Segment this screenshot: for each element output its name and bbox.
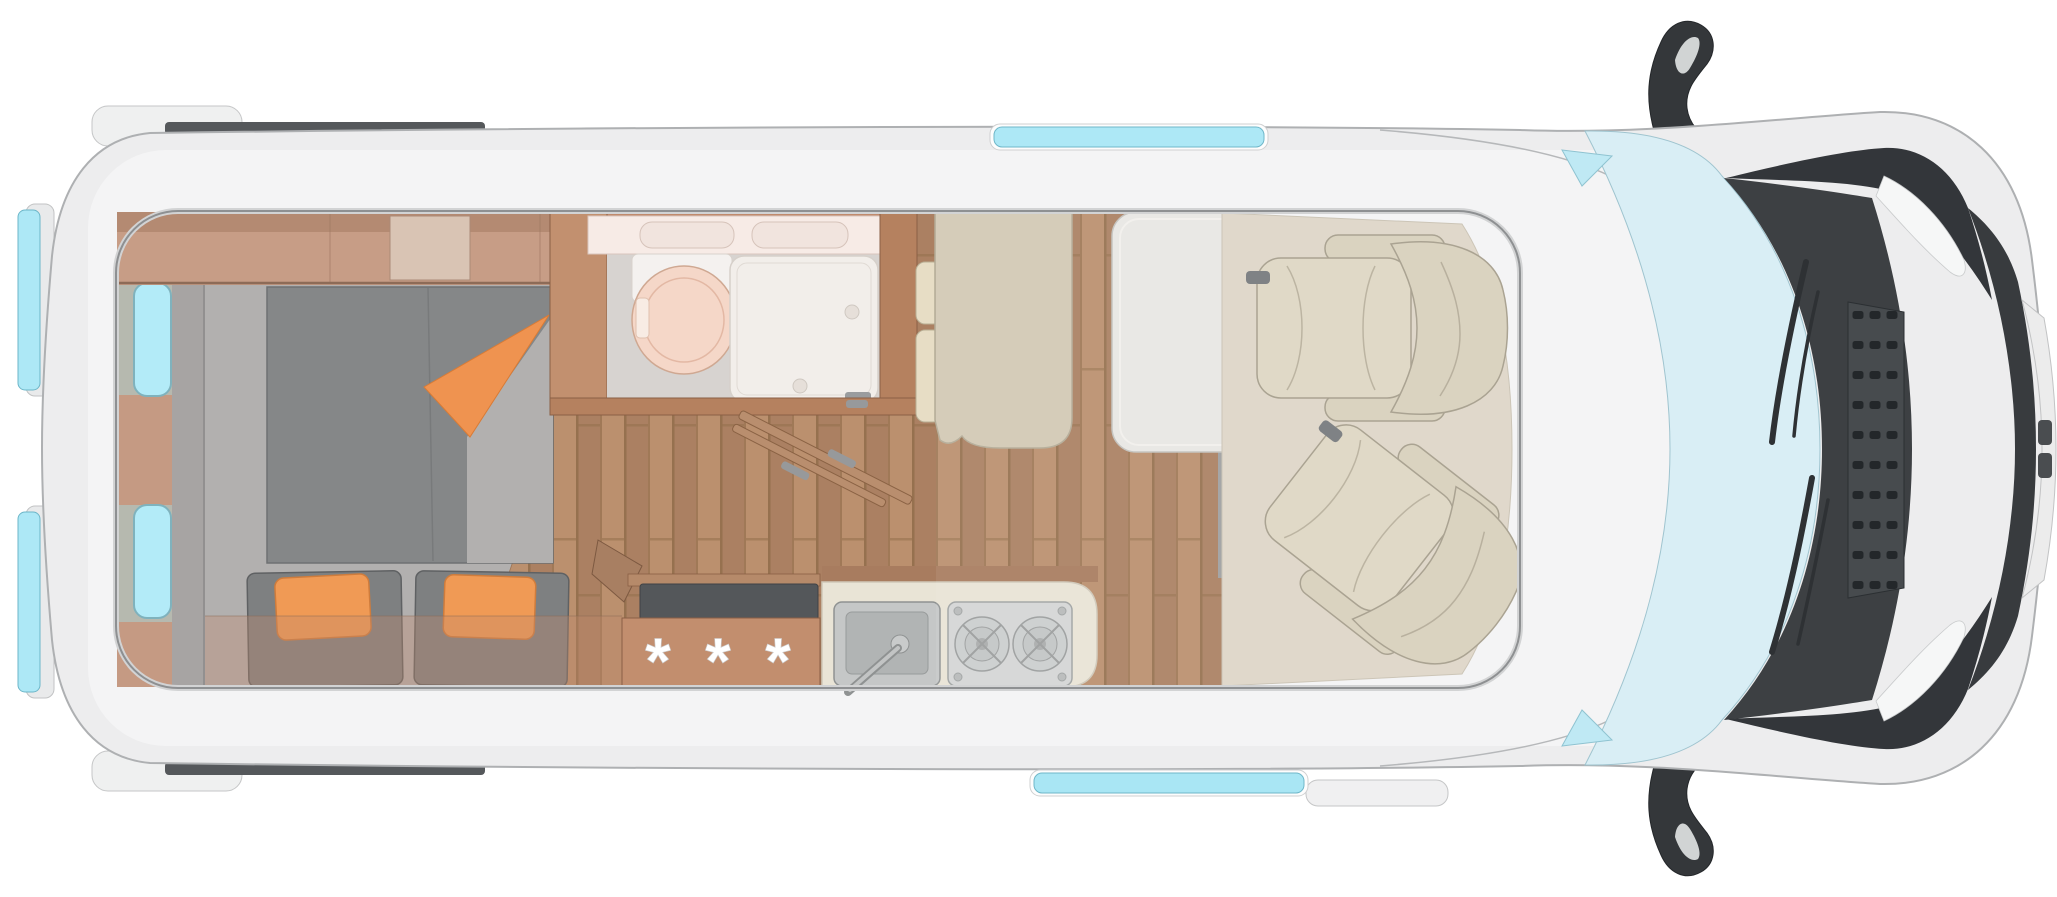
side-window-2 (134, 505, 171, 618)
worktop-mat (640, 584, 818, 620)
roof-glass-sheen (936, 212, 1518, 687)
floorplan-canvas: * * * (0, 0, 2057, 897)
sofa-front-board (205, 616, 622, 687)
bed (267, 287, 553, 563)
overhead-cabinet (117, 212, 550, 285)
basin-2 (752, 222, 848, 248)
interior: * * * (117, 212, 1553, 698)
cowl-vent-grille (1848, 302, 1904, 598)
roof-edge-window-strip-bottom (1030, 770, 1308, 796)
kitchen-sink (834, 602, 940, 692)
entry-step (1306, 780, 1448, 806)
side-window-1 (134, 283, 171, 396)
bathroom-wall-right (880, 212, 917, 415)
basin-1 (640, 222, 734, 248)
roof-edge-window-strip-top (990, 124, 1268, 150)
shower-drain (845, 305, 859, 319)
